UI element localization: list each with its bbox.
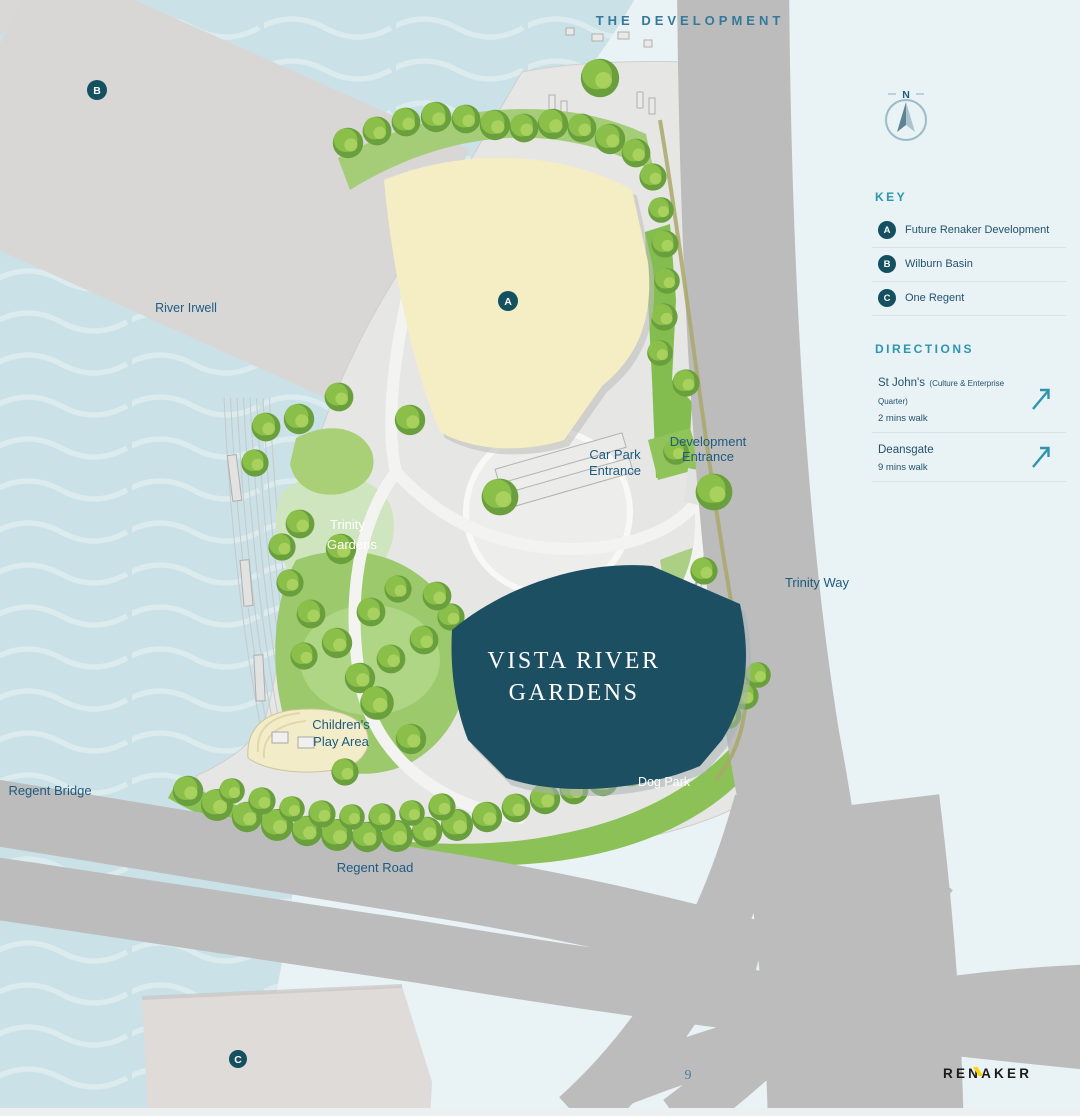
key-section: KEY A Future Renaker Development B Wilbu… <box>872 190 1066 316</box>
key-label: Future Renaker Development <box>905 224 1049 236</box>
directions-section: DIRECTIONS St John's (Culture & Enterpri… <box>872 342 1066 482</box>
direction-item-deansgate: Deansgate 9 mins walk <box>872 433 1066 482</box>
compass-icon: N <box>878 84 934 148</box>
renaker-n-accent <box>973 1067 983 1077</box>
compass-needle-light <box>906 102 915 132</box>
page-title: THE DEVELOPMENT <box>540 13 840 28</box>
marker-a: A <box>498 291 518 311</box>
key-marker-b: B <box>878 255 896 273</box>
page-edge-strip <box>0 1108 1080 1116</box>
brand-logo: RENAKER <box>943 1066 1032 1081</box>
regent-bridge-label: Regent Bridge <box>8 783 91 798</box>
marker-c: C <box>229 1050 247 1068</box>
childrens-play-area-label-2: Play Area <box>313 734 369 749</box>
svg-text:B: B <box>93 85 101 97</box>
walk-direction-arrow-icon <box>1030 386 1052 412</box>
key-item-future-renaker-development: A Future Renaker Development <box>872 214 1066 248</box>
key-item-one-regent: C One Regent <box>872 282 1066 316</box>
vista-river-gardens-label-2: GARDENS <box>509 680 640 706</box>
walk-direction-arrow-icon <box>1030 444 1052 470</box>
direction-walk-time: 9 mins walk <box>878 462 934 473</box>
vista-river-gardens-label-1: VISTA RIVER <box>488 648 661 674</box>
key-marker-a: A <box>878 221 896 239</box>
key-label: One Regent <box>905 292 964 304</box>
key-label: Wilburn Basin <box>905 258 973 270</box>
key-heading: KEY <box>875 190 1066 204</box>
svg-text:C: C <box>234 1054 242 1066</box>
car-park-entrance-label-1: Car Park <box>589 447 641 462</box>
brochure-page: River Irwell Trinity Gardens Car Park En… <box>0 0 1080 1116</box>
page-number: 9 <box>676 1068 700 1084</box>
trinity-gardens-label-2: Gardens <box>327 537 377 552</box>
trinity-way-widening <box>892 800 916 1116</box>
car-park-entrance-label-2: Entrance <box>589 463 641 478</box>
dog-park-label: Dog Park <box>638 775 691 789</box>
direction-name: Deansgate <box>878 444 934 456</box>
direction-item-st-johns: St John's (Culture & Enterprise Quarter)… <box>872 366 1066 433</box>
key-item-wilburn-basin: B Wilburn Basin <box>872 248 1066 282</box>
regent-road-label: Regent Road <box>337 860 414 875</box>
brand-logo-text: RENAKER <box>943 1066 1032 1081</box>
trinity-gardens-label-1: Trinity <box>330 517 365 532</box>
directions-heading: DIRECTIONS <box>875 342 1066 356</box>
development-entrance-label-2: Entrance <box>682 449 734 464</box>
marker-b: B <box>87 80 107 100</box>
legend-panel: N KEY A Future Renaker Development B Wil… <box>872 84 1066 482</box>
compass-needle-dark <box>897 102 906 132</box>
river-irwell-label: River Irwell <box>155 301 217 315</box>
direction-walk-time: 2 mins walk <box>878 413 1030 424</box>
development-entrance-label-1: Development <box>670 434 747 449</box>
direction-name: St John's <box>878 377 925 389</box>
one-regent-building <box>142 986 432 1116</box>
trinity-way-label: Trinity Way <box>785 575 850 590</box>
childrens-play-area-label-1: Children's <box>312 717 370 732</box>
key-marker-c: C <box>878 289 896 307</box>
svg-text:A: A <box>504 296 512 308</box>
